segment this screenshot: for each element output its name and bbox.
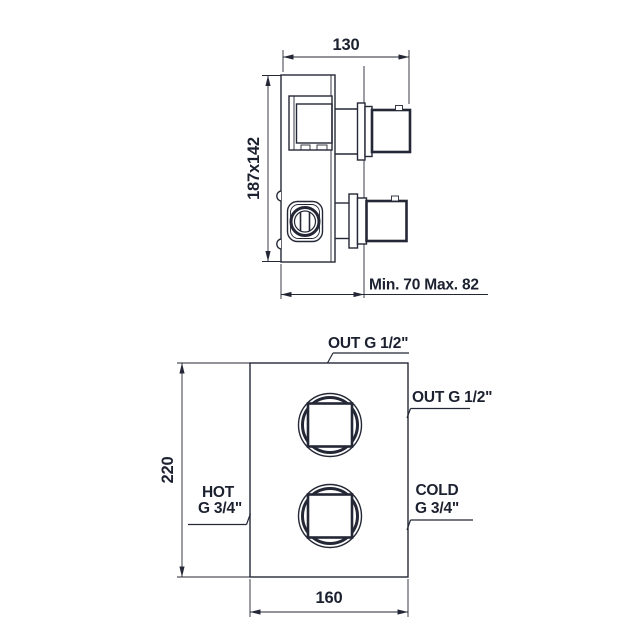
dimension-width-160: 160 [250, 579, 408, 617]
dimension-plate-187x142: 187x142 [245, 76, 281, 262]
label-hot: HOT G 3/4" [188, 484, 251, 525]
label-cold-line1: COLD [415, 482, 458, 499]
label-out-top-text: OUT G 1/2" [328, 335, 408, 352]
front-bottom-knob [299, 485, 362, 548]
label-cold: COLD G 3/4" [407, 482, 473, 530]
side-bottom-handle [288, 202, 323, 242]
dim-160-text: 160 [316, 589, 343, 607]
side-top-handle [289, 96, 332, 150]
dimension-depth-130: 130 [283, 36, 409, 104]
dimension-height-220: 220 [159, 363, 250, 577]
technical-drawing-canvas: 130 187x142 Min. 70 Max. 82 [0, 0, 640, 640]
label-out-top: OUT G 1/2" [328, 335, 410, 363]
side-bottom-connection [335, 194, 407, 248]
side-view-drawing: 130 187x142 Min. 70 Max. 82 [245, 36, 488, 299]
dim-min-max-text: Min. 70 Max. 82 [369, 277, 479, 294]
dim-220-text: 220 [159, 457, 177, 484]
label-hot-line2: G 3/4" [198, 500, 242, 517]
label-hot-line1: HOT [202, 484, 235, 501]
screw-bump-bottom [277, 239, 281, 249]
label-out-right: OUT G 1/2" [407, 389, 492, 418]
label-cold-line2: G 3/4" [415, 500, 459, 517]
front-view-drawing: 220 160 OUT G 1/2" OUT G 1/2" HOT G 3/4" [159, 335, 492, 617]
dim-187x142-text: 187x142 [245, 137, 263, 200]
side-top-connection [335, 103, 410, 160]
screw-bump-top [277, 191, 281, 201]
dim-130-text: 130 [333, 36, 360, 54]
technical-drawing-page: 130 187x142 Min. 70 Max. 82 [0, 0, 640, 640]
front-top-knob [299, 394, 362, 457]
label-out-right-text: OUT G 1/2" [412, 389, 492, 406]
dimension-min70-max82: Min. 70 Max. 82 [281, 264, 488, 299]
